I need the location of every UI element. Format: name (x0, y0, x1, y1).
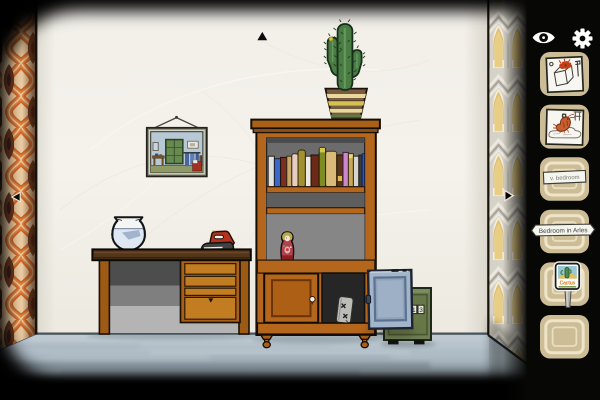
svg-text:Cactus: Cactus (560, 281, 576, 287)
svg-text:Bedroom in Arles: Bedroom in Arles (539, 227, 588, 235)
svg-text:3: 3 (419, 307, 423, 314)
svg-text:v. bedroom: v. bedroom (550, 175, 580, 182)
